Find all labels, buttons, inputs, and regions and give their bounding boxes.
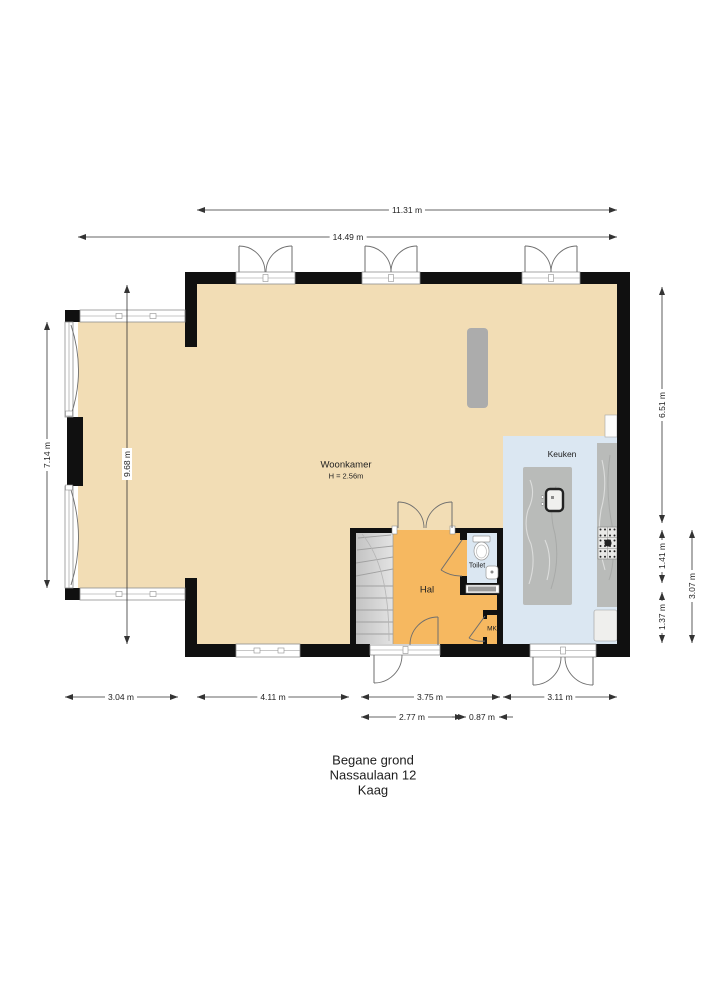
room-label-woonkamer: Woonkamer (320, 460, 371, 471)
kitchen-island (523, 467, 572, 605)
dim-top-inner: 11.31 m (389, 205, 425, 215)
toilet-niche (466, 585, 499, 593)
dim-bottom-hall-outer: 3.75 m (414, 692, 446, 702)
chimney (467, 328, 488, 408)
title-city: Kaag (330, 783, 417, 798)
staircase (356, 528, 393, 644)
room-label-woonkamer-height: H = 2.56m (329, 472, 364, 481)
room-label-keuken: Keuken (548, 449, 577, 459)
french-door-top-left (236, 246, 295, 284)
dim-right-outer: 3.07 m (687, 570, 697, 602)
room-label-hal: Hal (420, 585, 434, 596)
stove (598, 527, 617, 559)
dim-bottom-kitchen: 3.11 m (544, 692, 575, 702)
french-door-top-right (522, 246, 580, 284)
title-block: Begane grond Nassaulaan 12 Kaag (330, 753, 417, 798)
hand-basin (486, 566, 498, 579)
french-door-kitchen (530, 644, 596, 685)
dim-left-inner: 7.14 m (42, 439, 52, 471)
kitchen-cabinet (594, 610, 617, 641)
dim-bottom-livingroom: 4.11 m (257, 692, 288, 702)
dim-right-lower: 1.37 m (657, 601, 667, 633)
dim-bottom-extension: 3.04 m (105, 692, 137, 702)
floorplan-graphics (0, 0, 707, 1000)
french-door-top-middle (362, 246, 420, 284)
title-address: Nassaulaan 12 (330, 768, 417, 783)
kitchen-appliance-box (605, 415, 617, 437)
floorplan-canvas: 11.31 m 14.49 m 7.14 m 9.68 m 6.51 m 1.4… (0, 0, 707, 1000)
livingroom-extension-floor (78, 322, 200, 588)
title-floor: Begane grond (330, 753, 417, 768)
dim-top-outer: 14.49 m (330, 232, 367, 242)
kitchen-counter (597, 443, 617, 607)
dim-right-mid: 1.41 m (657, 540, 667, 572)
dim-bottom-hall-inner: 2.77 m (396, 712, 428, 722)
toilet-fixture (473, 536, 490, 560)
dim-bottom-toilet: 0.87 m (466, 712, 498, 722)
room-label-mk: MK (487, 626, 497, 633)
dim-left-outer: 9.68 m (122, 448, 132, 480)
dim-right-upper: 6.51 m (657, 389, 667, 421)
room-label-toilet: Toilet (469, 563, 485, 570)
